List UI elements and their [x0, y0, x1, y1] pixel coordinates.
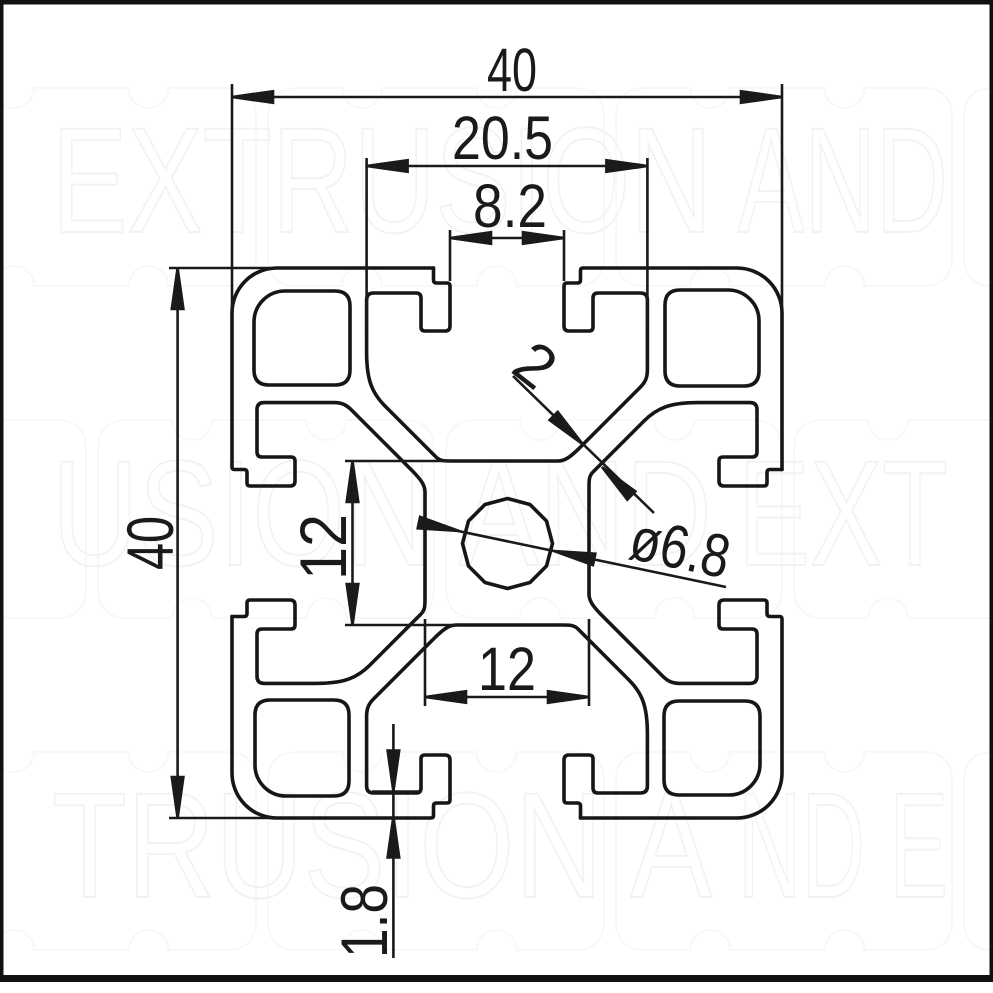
svg-text:40: 40: [113, 516, 187, 570]
svg-text:AND: AND: [738, 96, 948, 264]
svg-text:40: 40: [487, 36, 537, 104]
svg-text:20.5: 20.5: [452, 104, 553, 172]
svg-text:EXTRUSION: EXTRUSION: [52, 96, 712, 264]
svg-text:12: 12: [478, 635, 536, 703]
svg-text:12: 12: [286, 514, 360, 580]
svg-text:EXT: EXT: [738, 429, 948, 597]
svg-text:1.8: 1.8: [327, 884, 401, 958]
svg-text:8.2: 8.2: [473, 172, 547, 240]
svg-text:ND E: ND E: [738, 761, 948, 929]
